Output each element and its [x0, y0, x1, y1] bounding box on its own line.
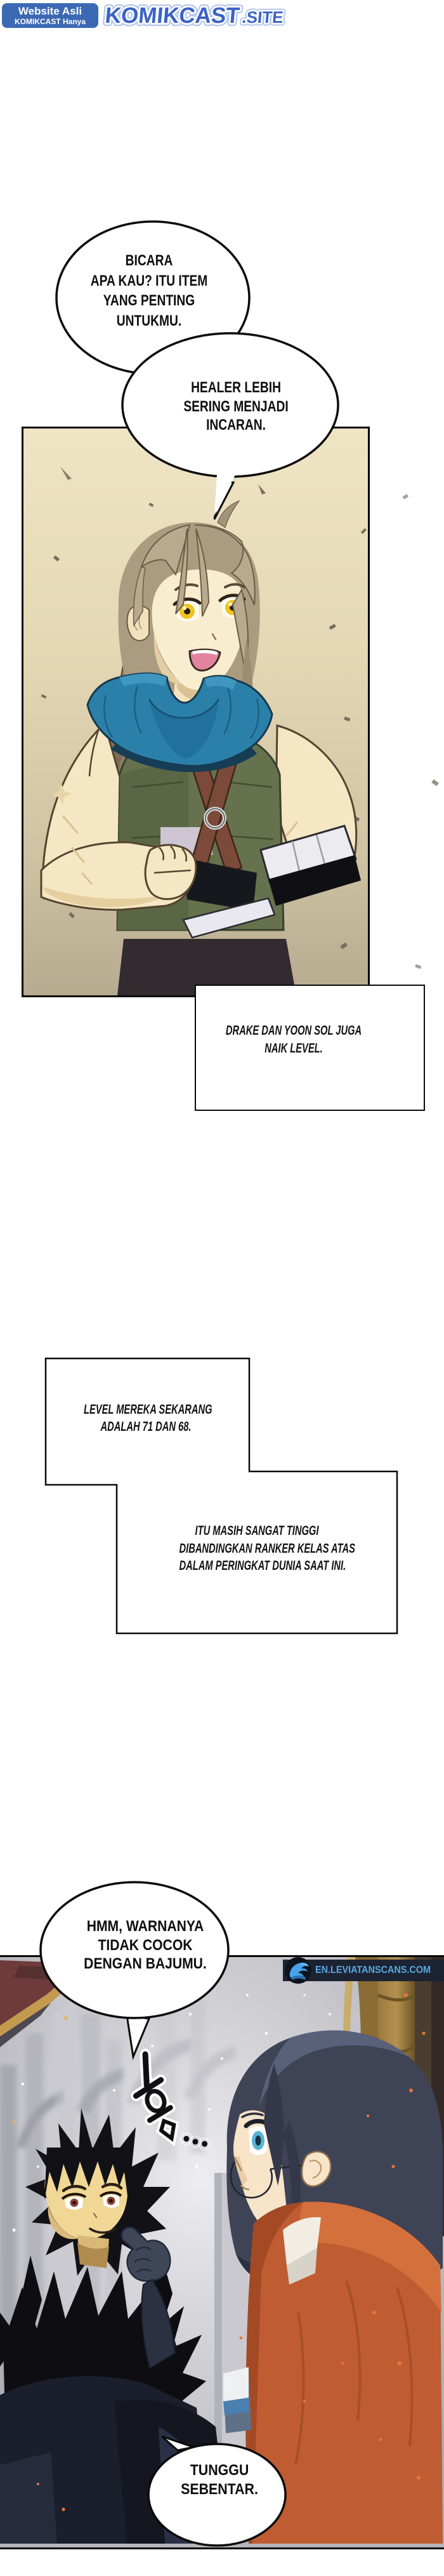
- svg-text:.SITE: .SITE: [241, 8, 284, 27]
- svg-text:KOMIKCAST: KOMIKCAST: [104, 3, 241, 28]
